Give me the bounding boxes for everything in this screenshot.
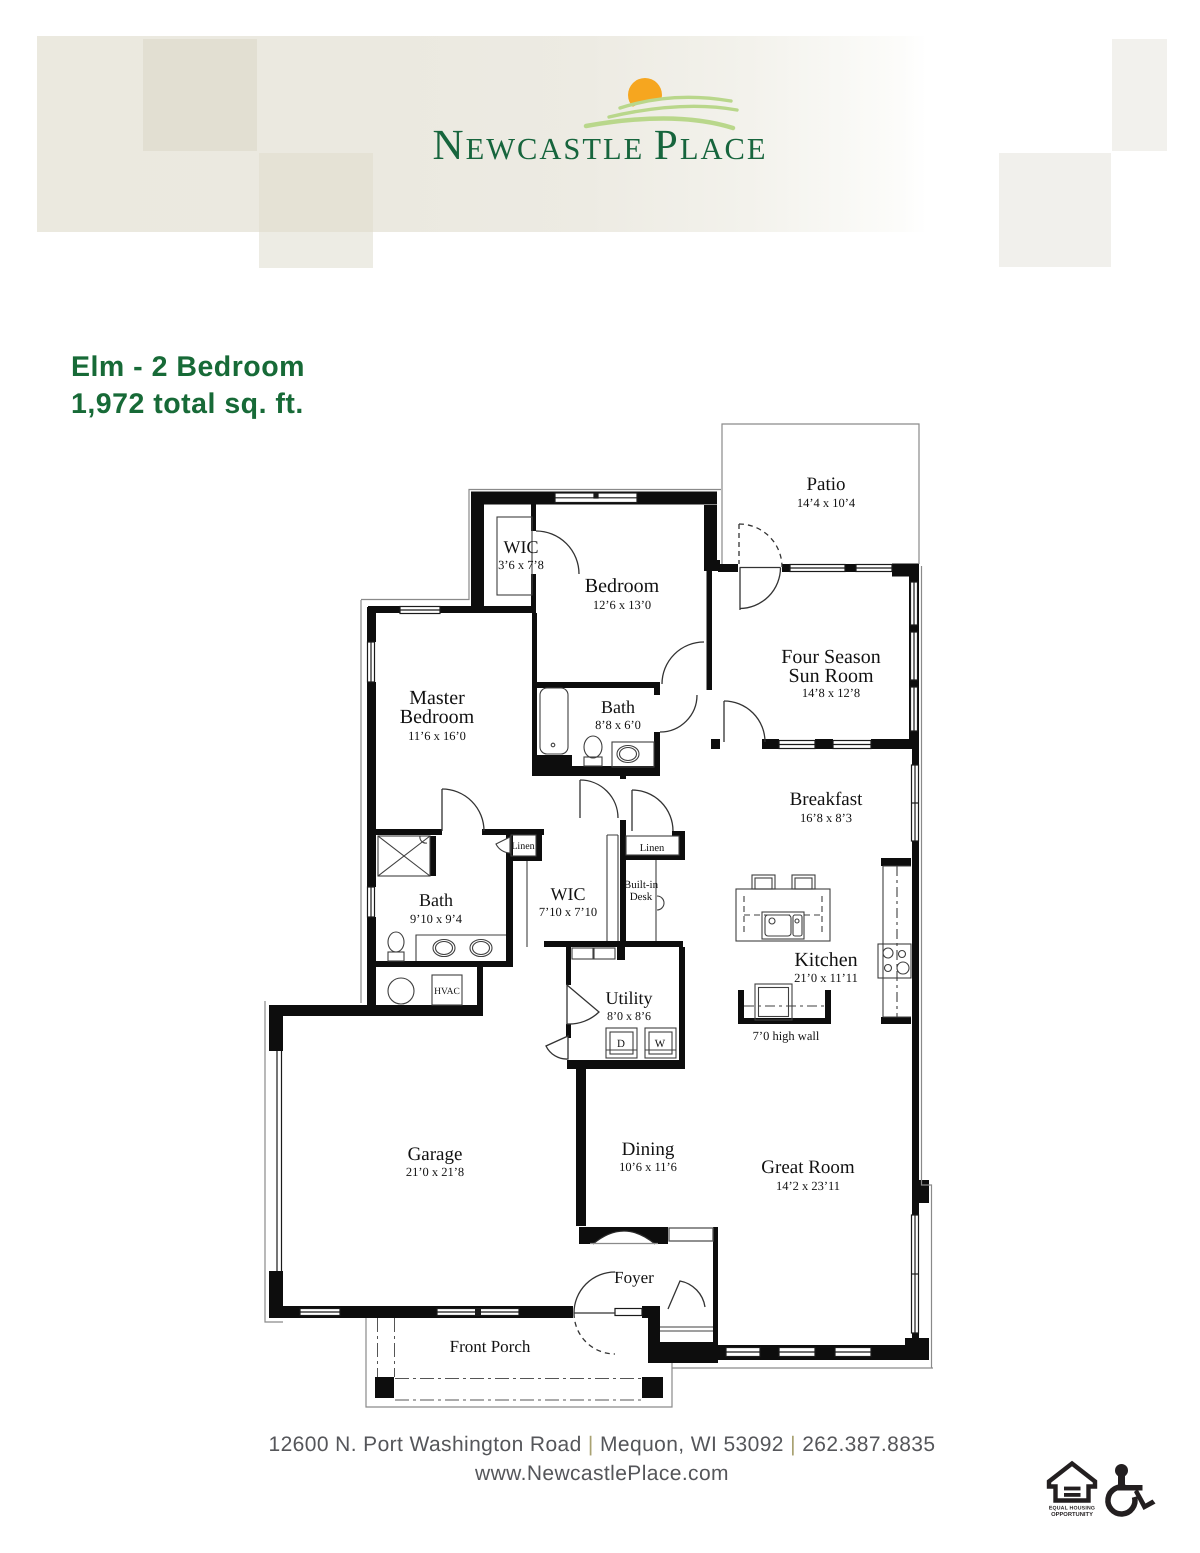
svg-text:W: W [655,1038,666,1050]
svg-text:Front Porch: Front Porch [450,1337,531,1356]
svg-text:WIC: WIC [551,884,586,904]
svg-text:Bath: Bath [601,697,635,717]
svg-text:8’0 x 8’6: 8’0 x 8’6 [607,1009,651,1023]
svg-text:EQUAL HOUSING: EQUAL HOUSING [1049,1506,1095,1512]
svg-text:11’6 x 16’0: 11’6 x 16’0 [408,729,466,743]
svg-text:Linen: Linen [511,841,534,852]
svg-text:Bedroom: Bedroom [585,575,660,597]
svg-text:Bedroom: Bedroom [400,706,475,728]
svg-text:Garage: Garage [408,1144,463,1165]
svg-text:3’6 x 7’8: 3’6 x 7’8 [498,558,544,572]
svg-text:10’6 x 11’6: 10’6 x 11’6 [619,1160,677,1174]
svg-text:Utility: Utility [605,988,652,1008]
svg-text:14’2 x 23’11: 14’2 x 23’11 [776,1179,840,1193]
svg-text:Dining: Dining [622,1139,675,1160]
svg-text:21’0 x 11’11: 21’0 x 11’11 [794,971,858,985]
svg-text:7’0 high wall: 7’0 high wall [753,1029,820,1043]
svg-text:Patio: Patio [806,474,845,495]
svg-text:Bath: Bath [419,890,453,910]
svg-text:16’8 x 8’3: 16’8 x 8’3 [800,811,852,825]
svg-text:Desk: Desk [630,891,653,903]
svg-text:Foyer: Foyer [614,1268,654,1287]
svg-text:HVAC: HVAC [434,987,460,997]
svg-text:Breakfast: Breakfast [790,789,864,810]
svg-text:Linen: Linen [640,843,665,854]
svg-text:8’8 x 6’0: 8’8 x 6’0 [595,718,641,732]
svg-text:9’10 x 9’4: 9’10 x 9’4 [410,912,463,926]
svg-text:Great Room: Great Room [761,1157,855,1178]
svg-text:7’10 x 7’10: 7’10 x 7’10 [539,905,597,919]
svg-text:Sun Room: Sun Room [788,665,873,687]
svg-text:WIC: WIC [504,537,539,557]
svg-text:14’8 x 12’8: 14’8 x 12’8 [802,686,860,700]
svg-text:Kitchen: Kitchen [794,949,857,971]
svg-text:14’4 x 10’4: 14’4 x 10’4 [797,496,856,510]
svg-text:Built-in: Built-in [624,879,659,891]
svg-text:12’6 x 13’0: 12’6 x 13’0 [593,598,651,612]
svg-text:21’0 x 21’8: 21’0 x 21’8 [406,1165,464,1179]
svg-text:D: D [617,1038,625,1050]
svg-text:OPPORTUNITY: OPPORTUNITY [1051,1511,1093,1518]
